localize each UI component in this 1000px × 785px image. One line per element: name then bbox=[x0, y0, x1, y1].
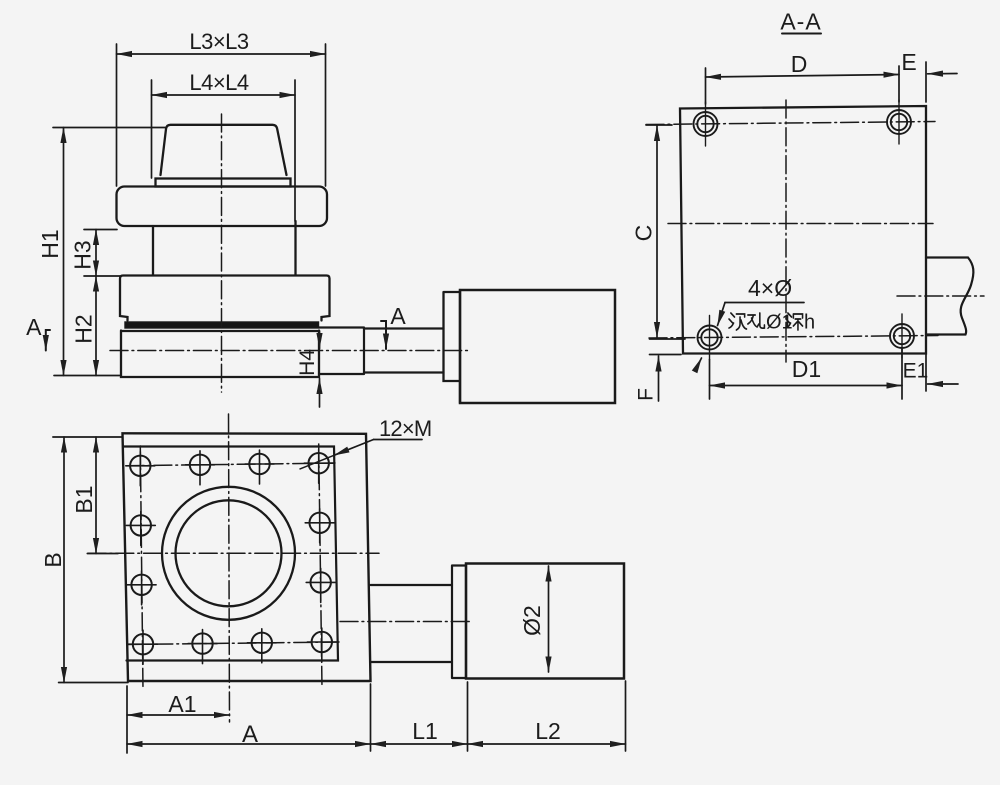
svg-text:H3: H3 bbox=[70, 240, 96, 269]
svg-text:L1: L1 bbox=[412, 718, 438, 744]
svg-text:E1: E1 bbox=[903, 360, 929, 383]
svg-text:H1: H1 bbox=[37, 229, 63, 258]
svg-text:H4: H4 bbox=[296, 349, 319, 376]
svg-text:L4×L4: L4×L4 bbox=[189, 70, 249, 95]
svg-text:C: C bbox=[631, 225, 657, 242]
svg-text:A-A: A-A bbox=[780, 9, 821, 35]
svg-text:A1: A1 bbox=[168, 691, 196, 717]
svg-text:B: B bbox=[40, 552, 66, 567]
svg-text:D1: D1 bbox=[792, 356, 821, 382]
svg-text:A: A bbox=[242, 721, 258, 748]
svg-text:h: h bbox=[804, 312, 815, 334]
svg-text:12×M: 12×M bbox=[379, 416, 431, 441]
svg-text:A: A bbox=[26, 314, 42, 340]
svg-text:E: E bbox=[901, 49, 916, 75]
svg-text:F: F bbox=[635, 388, 658, 401]
svg-text:D: D bbox=[791, 51, 808, 77]
svg-text:A: A bbox=[390, 303, 406, 329]
svg-text:B1: B1 bbox=[71, 485, 97, 513]
svg-text:L3×L3: L3×L3 bbox=[189, 29, 249, 54]
svg-text:H2: H2 bbox=[71, 314, 97, 343]
svg-text:L2: L2 bbox=[535, 718, 561, 744]
svg-text:Ø2: Ø2 bbox=[519, 605, 545, 636]
svg-text:4×Ø: 4×Ø bbox=[748, 275, 792, 301]
